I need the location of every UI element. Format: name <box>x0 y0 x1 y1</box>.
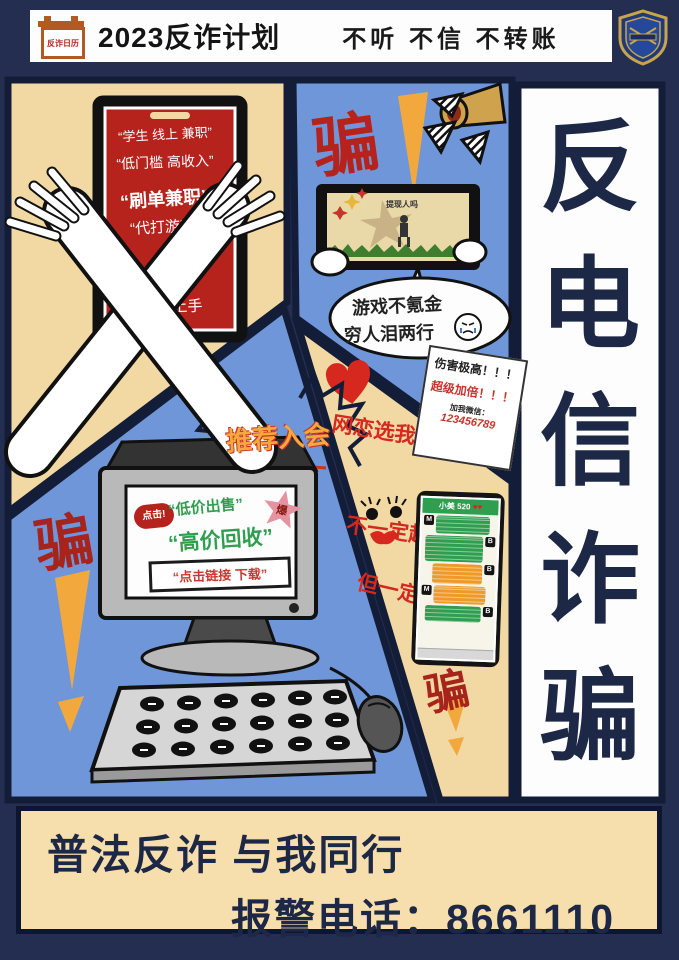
chat-title: 小美 520 <box>439 501 471 511</box>
banner-char: 电 <box>540 255 640 355</box>
poster-title: 2023反诈计划 <box>98 16 280 56</box>
banner-char: 反 <box>540 118 640 218</box>
vertical-banner: 反 电 信 诈 骗 <box>518 85 662 800</box>
bubble-text-2: 穷人泪两行 <box>344 318 435 347</box>
chat-message-row: B <box>423 535 496 563</box>
bottom-slogan: 普法反诈 与我同行 <box>47 821 657 881</box>
header-slogan: 不听 不信 不转账 <box>342 19 559 54</box>
avatar: B <box>484 565 494 575</box>
avatar: B <box>485 537 495 547</box>
header-bar: 反诈日历 2023反诈计划 不听 不信 不转账 <box>30 10 612 62</box>
avatar: B <box>483 607 493 617</box>
banner-char: 骗 <box>540 667 640 767</box>
police-badge-icon <box>616 8 670 66</box>
scam-note: 伤害极高！！！ 超级加倍！！！ 加我微信： 123456789 <box>412 345 528 471</box>
chat-header: 小美 520 ♥♥ <box>422 498 498 516</box>
bottom-banner: 普法反诈 与我同行 报警电话：8661110 <box>16 806 662 934</box>
crying-face-icon <box>455 314 481 340</box>
burst-text: 推荐入会 <box>225 414 331 458</box>
bao-character: 爆 <box>275 501 289 519</box>
anti-fraud-poster: “学生 线上 兼职” “低门槛 高收入” “刷单兼职” “代打游戏” 简单易上手… <box>0 0 679 960</box>
banner-char: 信 <box>540 392 640 492</box>
chat-screen: 小美 520 ♥♥ M B B M B <box>415 496 501 663</box>
pian-character: 骗 <box>306 88 385 192</box>
download-link-text: “点击链接 下载” <box>172 563 267 585</box>
logo-text: 反诈日历 <box>47 38 79 49</box>
avatar: M <box>424 515 434 525</box>
download-link-box: “点击链接 下载” <box>149 557 292 593</box>
bubble-text-1: 游戏不氪金 <box>351 290 442 321</box>
banner-char: 诈 <box>540 530 640 630</box>
chat-message-row: M <box>421 585 494 606</box>
avatar: M <box>421 585 431 595</box>
keyboard <box>92 681 374 782</box>
chat-message-row: B <box>421 605 494 624</box>
hearts-icon: ♥♥ <box>473 502 483 511</box>
chat-message-row: M <box>424 515 497 536</box>
tablet-caption: 提现人吗 <box>386 199 418 210</box>
chat-phone: 小美 520 ♥♥ M B B M B <box>411 491 505 668</box>
anti-fraud-calendar-logo-icon: 反诈日历 <box>38 16 84 56</box>
chat-message-row: B <box>422 563 495 586</box>
police-phone-number: 报警电话：8661110 <box>231 885 657 945</box>
game-tablet <box>312 184 486 275</box>
